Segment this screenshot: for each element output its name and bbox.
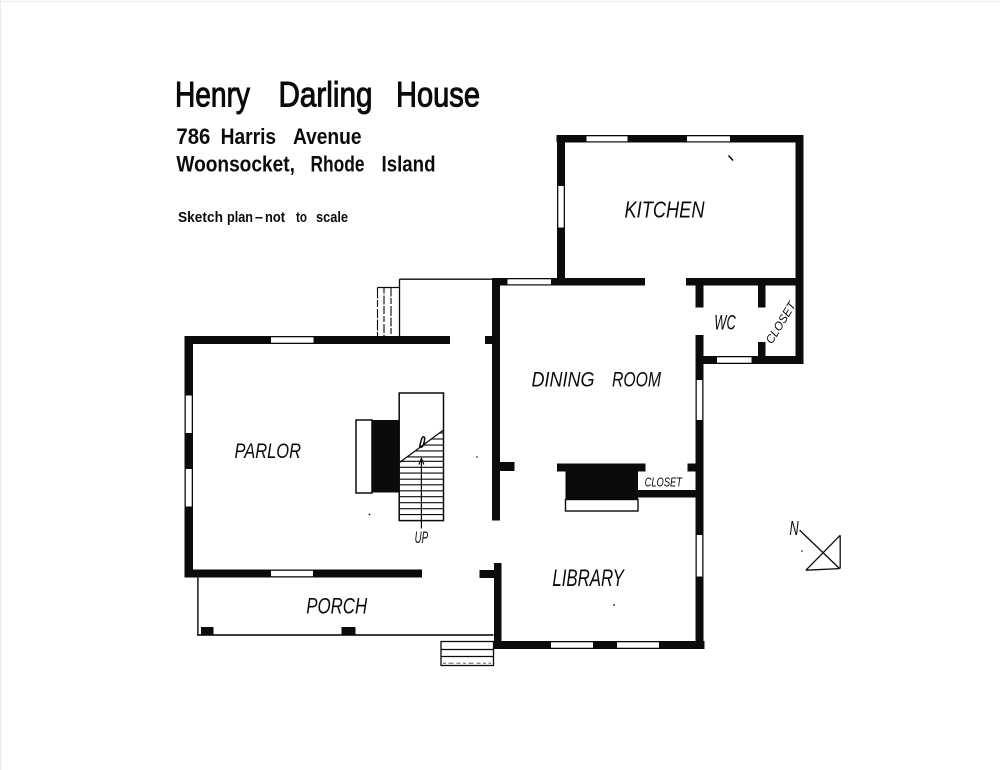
svg-text:scale: scale bbox=[316, 209, 348, 226]
svg-text:Sketch: Sketch bbox=[178, 209, 223, 226]
svg-text:DINING: DINING bbox=[532, 369, 595, 392]
svg-text:LIBRARY: LIBRARY bbox=[552, 565, 625, 592]
svg-text:–: – bbox=[255, 209, 263, 226]
svg-text:ROOM: ROOM bbox=[612, 369, 661, 392]
svg-text:786: 786 bbox=[176, 124, 210, 149]
svg-text:PARLOR: PARLOR bbox=[235, 440, 302, 463]
svg-text:House: House bbox=[396, 76, 480, 115]
svg-text:PORCH: PORCH bbox=[306, 594, 367, 619]
svg-text:KITCHEN: KITCHEN bbox=[625, 197, 705, 223]
svg-text:UP: UP bbox=[415, 529, 429, 547]
svg-text:not: not bbox=[265, 209, 285, 226]
svg-text:Island: Island bbox=[382, 151, 436, 176]
svg-text:Rhode: Rhode bbox=[311, 151, 365, 176]
svg-text:plan: plan bbox=[227, 209, 253, 226]
svg-text:to: to bbox=[296, 209, 307, 226]
svg-text:Woonsocket,: Woonsocket, bbox=[176, 151, 295, 176]
svg-text:Henry: Henry bbox=[175, 76, 250, 115]
svg-text:N: N bbox=[790, 517, 800, 540]
svg-text:Avenue: Avenue bbox=[293, 124, 362, 149]
svg-text:Harris: Harris bbox=[221, 124, 277, 149]
svg-text:CLOSET: CLOSET bbox=[645, 475, 683, 489]
svg-text:Darling: Darling bbox=[279, 76, 373, 115]
svg-text:WC: WC bbox=[714, 312, 736, 335]
